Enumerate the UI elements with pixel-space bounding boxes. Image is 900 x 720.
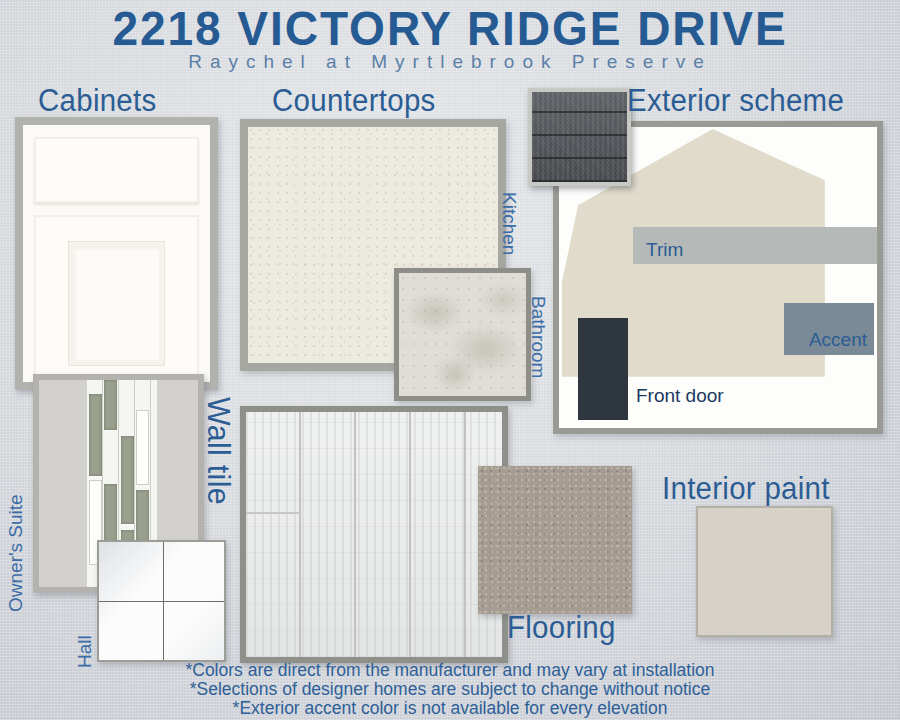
cabinet-door (34, 215, 199, 382)
trim-swatch: Trim (633, 227, 877, 264)
front-door-label: Front door (636, 385, 724, 407)
carpet-flooring-swatch (478, 466, 632, 614)
hall-tile-swatch (97, 540, 226, 662)
exterior-scheme-heading: Exterior scheme (627, 83, 844, 119)
bathroom-countertop-swatch (394, 268, 531, 401)
disclaimer-line: *Exterior accent color is not available … (0, 699, 900, 718)
wall-tile-heading: Wall tile (200, 397, 236, 505)
wood-flooring-swatch (240, 406, 508, 663)
countertops-heading: Countertops (272, 83, 436, 119)
bathroom-label: Bathroom (527, 296, 549, 378)
design-selections-board: 2218 VICTORY RIDGE DRIVE Raychel at Myrt… (0, 0, 900, 720)
interior-paint-heading: Interior paint (662, 471, 830, 507)
owners-suite-label: Owner's Suite (5, 442, 27, 612)
cabinet-drawer-front (34, 137, 199, 204)
tile-strip (89, 394, 102, 476)
page-title: 2218 VICTORY RIDGE DRIVE (18, 1, 882, 56)
front-door-swatch (578, 318, 628, 420)
cabinet-swatch (15, 117, 218, 390)
page-subtitle: Raychel at Myrtlebrook Preserve (0, 51, 900, 73)
accent-swatch: Accent (784, 303, 874, 355)
tile-strip (104, 380, 117, 430)
tile-strip (121, 436, 134, 524)
disclaimer-line: *Selections of designer homes are subjec… (0, 680, 900, 699)
roof-shingle-swatch (528, 88, 631, 186)
cabinets-heading: Cabinets (38, 83, 157, 119)
flooring-heading: Flooring (507, 610, 616, 646)
kitchen-label: Kitchen (498, 192, 520, 255)
interior-paint-swatch (696, 506, 833, 637)
tile-strip (136, 410, 149, 485)
disclaimer-line: *Colors are direct from the manufacturer… (0, 661, 900, 680)
disclaimer-text: *Colors are direct from the manufacturer… (0, 661, 900, 718)
accent-label: Accent (809, 329, 867, 351)
cabinet-door-panel (69, 242, 164, 366)
trim-label: Trim (646, 239, 683, 261)
